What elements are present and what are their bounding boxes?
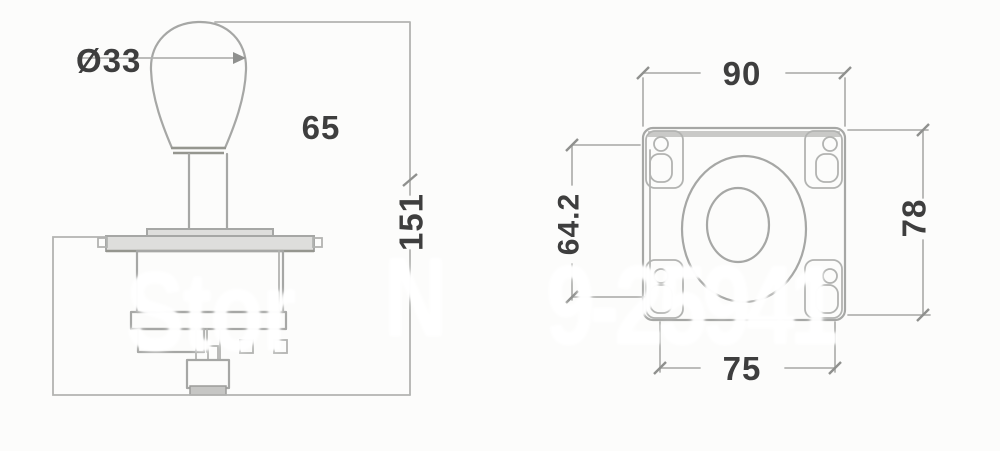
dim-total-height-label: 151 (393, 193, 430, 251)
switch-terminal-2 (240, 340, 253, 353)
dim-hole-spacing-vertical-label: 64.2 (553, 193, 586, 255)
switch-terminal-3 (274, 340, 287, 353)
mounting-flange (106, 236, 314, 251)
plate-view: 90 78 64.2 75 (553, 55, 933, 387)
actuator-body (187, 360, 229, 388)
body-mid-band (131, 312, 286, 329)
dim-plate-width: 90 (637, 55, 851, 126)
drawing-canvas: Ø33 65 151 (0, 0, 1000, 451)
dim-plate-height-label: 78 (896, 199, 933, 238)
corner-tab-bottom-left (646, 260, 683, 318)
dim-plate-width-label: 90 (723, 55, 762, 92)
ball-knob-base-line (171, 148, 226, 153)
dim-ball-diameter-label: Ø33 (76, 42, 141, 79)
switch-block (138, 329, 204, 352)
dim-hole-spacing-vertical: 64.2 (553, 139, 647, 303)
actuator-foot (190, 386, 226, 395)
side-view: Ø33 65 151 (53, 22, 430, 395)
dim-heights: 65 151 (215, 22, 430, 395)
shaft (189, 154, 227, 229)
body-upper (137, 251, 283, 312)
dim-upper-height-label: 65 (302, 109, 341, 146)
pivot-ring-inner (707, 188, 769, 262)
dim-hole-spacing-horizontal-label: 75 (723, 350, 762, 387)
dim-hole-spacing-horizontal: 75 (654, 322, 841, 387)
corner-tab-top-left (646, 131, 683, 188)
switch-terminal-1 (208, 346, 218, 360)
ball-knob (151, 22, 246, 148)
pivot-ring-outer (682, 156, 806, 302)
corner-tab-top-right (805, 131, 842, 188)
dust-washer (147, 229, 273, 236)
witness-outline (53, 237, 410, 395)
joystick-technical-drawing: Ø33 65 151 (0, 0, 1000, 451)
dim-ball-diameter: Ø33 (76, 42, 246, 79)
corner-tab-bottom-right (805, 260, 842, 318)
dim-plate-height: 78 (848, 124, 933, 321)
